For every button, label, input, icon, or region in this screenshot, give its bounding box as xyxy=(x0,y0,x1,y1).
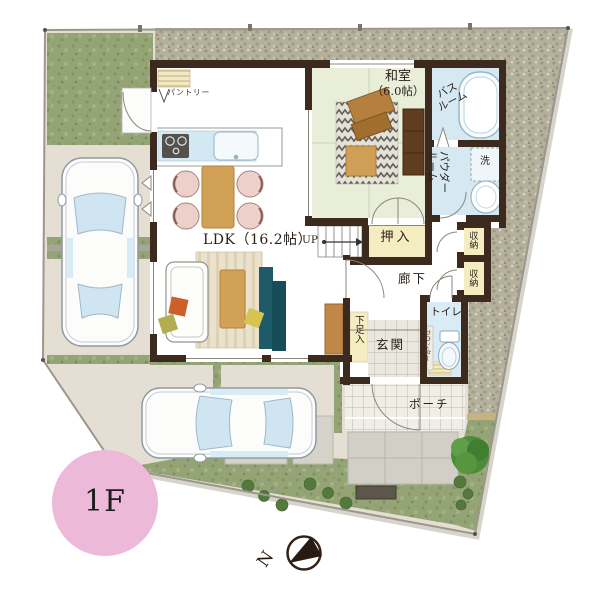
compass-icon xyxy=(288,537,323,570)
pillow-orange xyxy=(168,297,188,317)
hallway-label: 廊下 xyxy=(398,272,427,286)
storage-label-2: 収納 xyxy=(467,269,477,295)
low-table xyxy=(346,146,376,176)
car-side-yard xyxy=(58,158,142,346)
genkan-label: 玄関 xyxy=(376,338,405,352)
powder-label-line1: パウダー xyxy=(438,151,450,213)
tansu-chest xyxy=(403,109,424,175)
car-front-yard xyxy=(142,384,316,462)
porch-label: ポーチ xyxy=(409,398,450,411)
shoe-cabinet-label: 下足入 xyxy=(352,315,363,363)
floor-plan-page: パントリー LDK（16.2帖） UP 和室 （6.0帖） バス ルーム パウダ… xyxy=(0,0,600,599)
toilet-tank xyxy=(440,331,459,342)
powder-label-line2: ルーム xyxy=(426,151,438,213)
washitsu-name: 和室 xyxy=(358,70,438,85)
pantry-label: パントリー xyxy=(167,88,210,97)
pantry-shelf xyxy=(158,70,190,87)
coffee-table xyxy=(220,270,245,328)
storage-label-1: 収納 xyxy=(467,231,477,257)
hall-cabinet xyxy=(325,304,343,354)
garden-bench xyxy=(356,486,396,499)
floor-badge-label: 1F xyxy=(75,485,135,520)
toilet-counter-label: カウンター xyxy=(423,329,430,371)
oshiire-label: 押入 xyxy=(368,231,425,246)
tree xyxy=(451,436,489,474)
powder-label: パウダー ルーム xyxy=(426,151,450,213)
ldk-label: LDK（16.2帖） xyxy=(203,232,312,248)
laundry-label: 洗 xyxy=(480,156,490,168)
stairs xyxy=(318,226,363,257)
sofa-teal xyxy=(259,267,273,349)
stairs-up-label: UP xyxy=(302,234,318,246)
toilet-label: トイレ xyxy=(428,306,464,318)
